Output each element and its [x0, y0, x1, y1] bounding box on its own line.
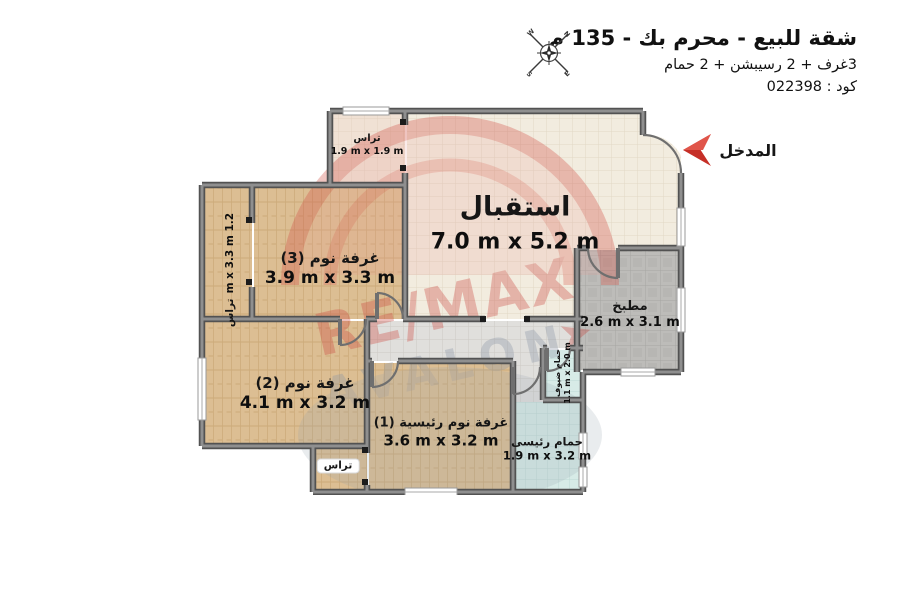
entrance-arrow-icon	[683, 134, 711, 166]
terrace-bottom-label: تراس	[318, 459, 359, 472]
terrace-top-label: تراس 1.9 m x 1.9 m	[331, 133, 404, 157]
reception-label: استقبال 7.0 m x 5.2 m	[431, 190, 600, 255]
bedroom3-label: غرفة نوم (3) 3.9 m x 3.3 m	[265, 249, 395, 289]
svg-text:W: W	[525, 27, 536, 38]
master-bedroom-label: غرفة نوم رئيسية (1) 3.6 m x 3.2 m	[374, 416, 509, 451]
compass-rose-icon: N W S E	[520, 24, 578, 82]
terrace-left-label: 1.2 m x 3.3 m تراس	[218, 207, 238, 327]
floorplan: RE/MAX AVALON	[195, 105, 785, 495]
master-bath-label: حمام رئيسى 1.9 m x 3.2 m	[503, 435, 591, 464]
svg-text:S: S	[525, 70, 534, 79]
bedroom2-label: غرفة نوم (2) 4.1 m x 3.2 m	[240, 374, 370, 414]
svg-text:E: E	[563, 69, 572, 78]
listing-code: كود : 022398	[767, 79, 857, 95]
entrance-label: المدخل	[719, 141, 776, 161]
page-subtitle: 3غرف + 2 رسيبشن + 2 حمام	[664, 57, 857, 73]
page-title: شقة للبيع - محرم بك - 135 م	[549, 26, 857, 50]
guest-bath-label: حمام ضيوف 1.1 m x 2.0 m	[553, 342, 573, 403]
floorplan-page: { "header": { "title": "شقة للبيع - محرم…	[0, 0, 900, 600]
kitchen-label: مطبخ 2.6 m x 3.1 m	[580, 299, 680, 332]
